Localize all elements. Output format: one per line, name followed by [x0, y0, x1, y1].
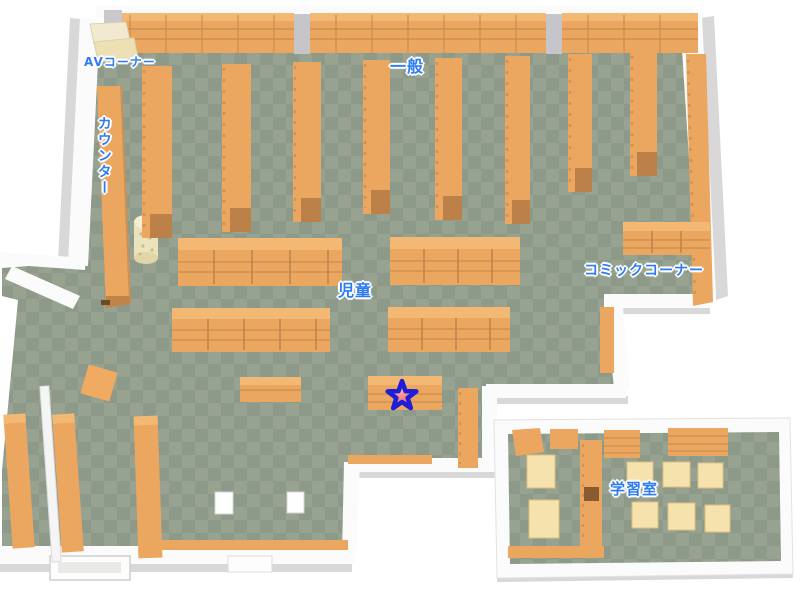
label-children: 児童 — [338, 283, 372, 300]
low-bookshelf — [390, 237, 520, 285]
bookshelf-aisle — [630, 52, 657, 176]
entrance-door — [50, 556, 130, 580]
study-shelf — [512, 428, 544, 456]
study-room-floor — [508, 432, 781, 564]
label-av-corner: AVコーナー — [84, 56, 156, 69]
bookshelf-aisle — [505, 56, 530, 224]
bookshelf-aisle — [293, 62, 321, 222]
study-table — [705, 505, 730, 532]
bookshelf-aisle — [363, 60, 390, 214]
label-study-room: 学習室 — [610, 482, 658, 498]
bottom-wall-shelf-strip — [155, 540, 348, 550]
study-shelf — [550, 429, 578, 449]
study-top-shelf — [668, 428, 728, 456]
comic-shelf-unit — [623, 222, 710, 255]
pillar — [546, 14, 562, 54]
low-bookshelf-small — [240, 377, 301, 402]
label-counter: カウンター — [96, 116, 111, 196]
study-table — [529, 500, 559, 538]
bookshelf-top-center — [310, 13, 546, 53]
stool-box — [287, 492, 304, 513]
low-bookshelf — [172, 308, 330, 352]
study-table — [663, 462, 690, 487]
bookshelf-aisle — [134, 416, 163, 559]
study-table — [527, 455, 555, 488]
study-table — [668, 503, 695, 530]
floor-map-canvas — [0, 0, 800, 600]
study-divider-shelf — [580, 440, 602, 546]
bookshelf-aisle — [222, 64, 251, 232]
study-table — [698, 463, 723, 488]
bookshelf-aisle — [435, 58, 462, 220]
low-bookshelf — [388, 307, 510, 352]
bookshelf-aisle — [568, 54, 592, 192]
bookshelf-aisle — [142, 66, 172, 238]
label-comic-corner: コミックコーナー — [584, 264, 704, 279]
study-room — [494, 418, 793, 582]
service-door — [228, 556, 272, 572]
mid-wall-shelf — [458, 388, 478, 468]
pillar — [294, 14, 310, 54]
stool-box — [215, 492, 233, 514]
study-top-shelf — [604, 430, 640, 458]
wall-shelf-strip — [348, 455, 432, 464]
study-table — [632, 502, 658, 528]
top-wall-shelves — [104, 13, 698, 54]
study-shelf-strip — [508, 546, 604, 558]
comic-wall-shelf-lower — [600, 307, 614, 373]
bookshelf-top-right — [562, 13, 698, 53]
label-general: 一般 — [390, 59, 424, 76]
library-floor-map: AVコーナー カウンター 一般 児童 コミックコーナー 学習室 — [0, 0, 800, 600]
low-bookshelf — [178, 238, 342, 286]
mid-step-wall-h2 — [486, 384, 626, 398]
